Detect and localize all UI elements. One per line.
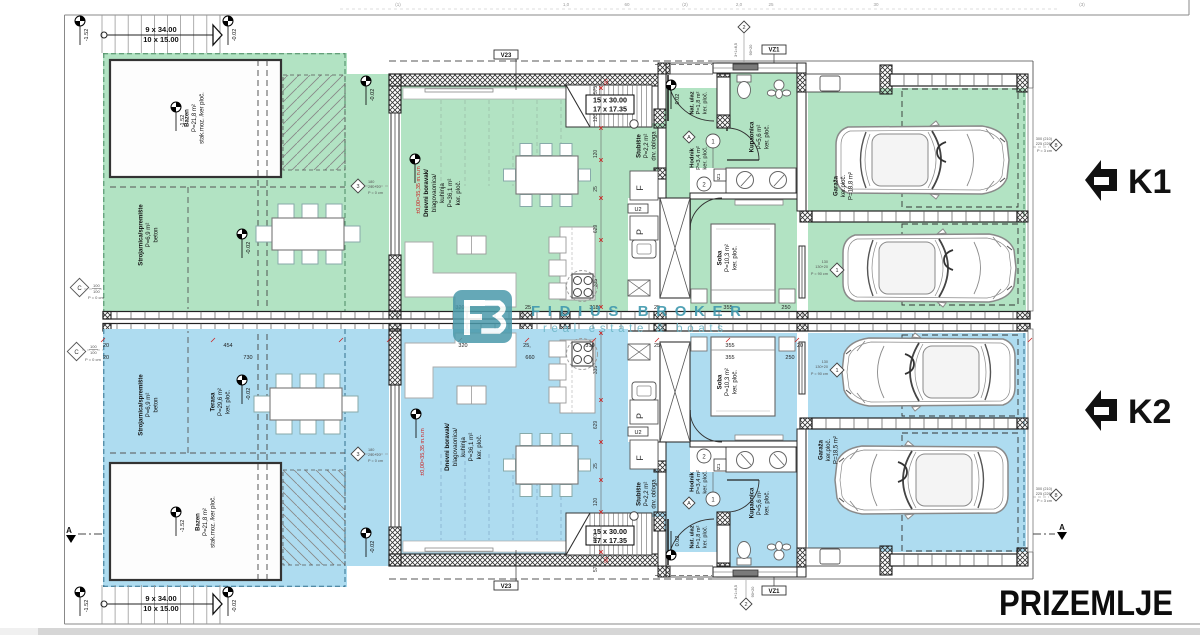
- svg-text:2: 2: [742, 25, 745, 31]
- svg-text:stak.moz. /ker ploč.: stak.moz. /ker ploč.: [211, 496, 217, 548]
- svg-text:575: 575: [593, 86, 599, 95]
- svg-text:IZ1: IZ1: [716, 463, 722, 470]
- svg-text:Stubište: Stubište: [637, 134, 643, 158]
- svg-text:ker. ploč.: ker. ploč.: [476, 434, 483, 459]
- svg-text:U2: U2: [634, 207, 641, 213]
- svg-text:1,0: 1,0: [563, 2, 570, 7]
- svg-text:Nat. ulaz: Nat. ulaz: [690, 525, 696, 548]
- svg-text:P=2,2 m²: P=2,2 m²: [644, 134, 650, 159]
- svg-text:Hodnik: Hodnik: [690, 147, 696, 167]
- svg-text:180: 180: [368, 180, 374, 184]
- svg-text:P = 0 cm: P = 0 cm: [85, 357, 101, 362]
- svg-text:225 (226): 225 (226): [1036, 492, 1053, 496]
- svg-text:P=10,3 m²: P=10,3 m²: [725, 244, 731, 272]
- svg-text:P=2,2 m²: P=2,2 m²: [644, 482, 650, 507]
- svg-text:10 x 15.00: 10 x 15.00: [143, 604, 178, 613]
- svg-text:9 x 34.00: 9 x 34.00: [145, 594, 176, 603]
- svg-text:120: 120: [593, 150, 599, 159]
- svg-text:1: 1: [835, 268, 838, 274]
- svg-text:P=1,8 m²: P=1,8 m²: [696, 525, 702, 548]
- svg-text:P = 0 cm: P = 0 cm: [88, 295, 104, 300]
- svg-text:90+20: 90+20: [749, 45, 753, 56]
- svg-text:250: 250: [781, 305, 790, 311]
- svg-text:ker. ploč.: ker. ploč.: [703, 470, 709, 494]
- svg-text:25: 25: [768, 2, 774, 7]
- svg-text:C: C: [77, 286, 82, 292]
- svg-text:Strojarnica/spremište: Strojarnica/spremište: [139, 374, 145, 436]
- svg-text:Kupaonica: Kupaonica: [750, 487, 756, 518]
- svg-text:P = 0 cm: P = 0 cm: [368, 191, 383, 195]
- svg-text:25: 25: [593, 463, 599, 469]
- svg-text:K1: K1: [1128, 163, 1171, 201]
- svg-text:2,0: 2,0: [736, 2, 743, 7]
- svg-text:P=36,1 m²: P=36,1 m²: [468, 433, 475, 462]
- svg-text:(2): (2): [682, 2, 688, 7]
- svg-text:120: 120: [593, 534, 599, 543]
- svg-text:30: 30: [873, 2, 879, 7]
- svg-text:ker. ploč.: ker. ploč.: [733, 246, 739, 270]
- svg-text:±0,00=35,35 m.n.m: ±0,00=35,35 m.n.m: [416, 166, 422, 214]
- svg-text:P=21,8 m²: P=21,8 m²: [203, 508, 209, 536]
- svg-text:629: 629: [593, 421, 599, 430]
- svg-text:130+20: 130+20: [815, 365, 828, 369]
- svg-text:0.02: 0.02: [675, 94, 681, 105]
- svg-text:575: 575: [593, 564, 599, 573]
- svg-text:P=18,8 m²: P=18,8 m²: [849, 172, 855, 200]
- svg-text:Hodnik: Hodnik: [690, 471, 696, 491]
- svg-text:Bazen: Bazen: [196, 513, 202, 531]
- svg-text:100: 100: [93, 283, 100, 288]
- svg-text:K2: K2: [1128, 393, 1171, 431]
- svg-text:P=10,3 m²: P=10,3 m²: [725, 368, 731, 396]
- svg-text:P=21,8 m²: P=21,8 m²: [192, 104, 198, 132]
- svg-text:C: C: [74, 350, 79, 356]
- svg-text:320: 320: [458, 343, 467, 349]
- svg-text:454: 454: [223, 343, 232, 349]
- svg-text:-0.02: -0.02: [246, 388, 252, 401]
- svg-text:100: 100: [90, 344, 97, 349]
- svg-text:3+1=8,5: 3+1=8,5: [734, 585, 738, 599]
- svg-text:ker. ploč.: ker. ploč.: [455, 180, 462, 205]
- svg-text:ker. ploč.: ker. ploč.: [703, 146, 709, 170]
- svg-text:A: A: [66, 526, 72, 535]
- svg-text:130: 130: [822, 360, 828, 364]
- svg-text:-0.02: -0.02: [246, 242, 252, 255]
- svg-text:P: P: [635, 413, 645, 419]
- svg-text:ker. ploč.: ker. ploč.: [765, 125, 771, 149]
- svg-text:ker.ploč.: ker.ploč.: [841, 175, 847, 198]
- svg-text:(3): (3): [1079, 2, 1085, 7]
- svg-text:Nat. ulaz: Nat. ulaz: [690, 91, 696, 114]
- svg-text:25: 25: [654, 343, 660, 349]
- svg-text:120: 120: [593, 114, 599, 123]
- svg-text:3: 3: [356, 184, 359, 190]
- svg-text:P=5,6 m²: P=5,6 m²: [757, 125, 763, 150]
- svg-text:0.02: 0.02: [675, 536, 681, 547]
- svg-text:blagovaonica/: blagovaonica/: [452, 428, 459, 466]
- svg-text:ker. ploč.: ker. ploč.: [703, 91, 709, 114]
- svg-text:-0.02: -0.02: [232, 29, 238, 42]
- svg-text:U2: U2: [634, 430, 641, 436]
- svg-text:Dnevni boravak/: Dnevni boravak/: [444, 423, 451, 471]
- svg-text:120: 120: [593, 498, 599, 507]
- svg-text:ker. ploč.: ker. ploč.: [765, 491, 771, 515]
- svg-text:-0.02: -0.02: [232, 600, 238, 613]
- svg-text:355: 355: [725, 343, 734, 349]
- svg-text:660: 660: [525, 355, 534, 361]
- svg-text:25: 25: [593, 186, 599, 192]
- svg-text:A: A: [1059, 523, 1065, 532]
- svg-text:Stubište: Stubište: [637, 482, 643, 506]
- svg-text:P=36,1 m²: P=36,1 m²: [447, 179, 454, 208]
- svg-text:-0.02: -0.02: [370, 89, 376, 102]
- svg-text:100: 100: [90, 350, 97, 355]
- svg-text:F: F: [635, 185, 645, 191]
- svg-text:PRIZEMLJE: PRIZEMLJE: [999, 584, 1173, 623]
- svg-text:335: 335: [593, 279, 599, 288]
- svg-text:A: A: [687, 135, 691, 141]
- svg-text:P = 90 cm: P = 90 cm: [811, 272, 828, 276]
- svg-text:90+20: 90+20: [751, 587, 755, 598]
- svg-text:25,: 25,: [523, 343, 531, 349]
- svg-text:ker. ploč.: ker. ploč.: [226, 390, 232, 414]
- svg-text:-1.52: -1.52: [84, 600, 90, 613]
- svg-text:10 x 15.00: 10 x 15.00: [143, 35, 178, 44]
- svg-text:IZ1: IZ1: [716, 173, 722, 180]
- svg-text:P=3,4 m²: P=3,4 m²: [696, 146, 702, 170]
- svg-text:P = 3 cm: P = 3 cm: [1037, 499, 1052, 503]
- svg-text:300 (210): 300 (210): [1036, 487, 1053, 491]
- svg-text:Terasa: Terasa: [211, 392, 217, 412]
- svg-text:20: 20: [797, 343, 803, 349]
- svg-text:P=5,6 m²: P=5,6 m²: [757, 491, 763, 516]
- svg-text:316: 316: [585, 343, 594, 349]
- svg-text:P=3,4 m²: P=3,4 m²: [696, 470, 702, 494]
- svg-text:P=18,5 m²: P=18,5 m²: [834, 436, 840, 464]
- svg-text:beton: beton: [154, 227, 160, 242]
- svg-text:3+1=8,5: 3+1=8,5: [734, 43, 738, 57]
- svg-text:629: 629: [593, 225, 599, 234]
- svg-text:P = 0 cm: P = 0 cm: [368, 459, 383, 463]
- svg-text:Dnevni boravak/: Dnevni boravak/: [423, 169, 430, 217]
- svg-text:±0,00=35,35 m.n.m: ±0,00=35,35 m.n.m: [420, 428, 426, 476]
- svg-text:3: 3: [356, 452, 359, 458]
- svg-text:drv. obloga: drv. obloga: [652, 479, 658, 509]
- svg-text:8: 8: [1054, 143, 1057, 149]
- svg-text:-1.52: -1.52: [180, 115, 186, 128]
- svg-text:P: P: [635, 229, 645, 235]
- svg-text:kuhinja: kuhinja: [460, 437, 467, 457]
- svg-text:355: 355: [725, 355, 734, 361]
- svg-text:225 (226): 225 (226): [1036, 142, 1053, 146]
- svg-text:20: 20: [103, 343, 109, 349]
- svg-text:Strojarnica/spremište: Strojarnica/spremište: [139, 204, 145, 266]
- svg-text:VZ1: VZ1: [768, 589, 780, 595]
- svg-text:kuhinja: kuhinja: [439, 183, 446, 203]
- svg-text:-1.52: -1.52: [84, 29, 90, 42]
- svg-text:Garaža: Garaža: [819, 439, 825, 460]
- svg-text:P=6,9 m²: P=6,9 m²: [146, 223, 152, 248]
- svg-text:-1.52: -1.52: [180, 520, 186, 533]
- svg-text:V23: V23: [501, 584, 512, 590]
- svg-text:ker. ploč.: ker. ploč.: [703, 525, 709, 548]
- svg-text:2: 2: [744, 602, 747, 608]
- svg-text:Garaža: Garaža: [834, 175, 840, 196]
- svg-text:15 x 30.00: 15 x 30.00: [593, 96, 627, 105]
- svg-text:90: 90: [604, 557, 610, 563]
- svg-text:20: 20: [103, 355, 109, 361]
- svg-text:60: 60: [624, 2, 630, 7]
- svg-text:P = 3 cm: P = 3 cm: [1037, 149, 1052, 153]
- svg-text:300 (210): 300 (210): [1036, 137, 1053, 141]
- svg-text:8: 8: [1054, 493, 1057, 499]
- svg-text:P=6,9 m²: P=6,9 m²: [146, 393, 152, 418]
- svg-text:Soba: Soba: [718, 374, 724, 389]
- svg-text:VZ1: VZ1: [768, 48, 780, 54]
- svg-text:100: 100: [93, 289, 100, 294]
- svg-text:17 x 17.35: 17 x 17.35: [593, 105, 627, 114]
- svg-text:P = 90 cm: P = 90 cm: [811, 372, 828, 376]
- svg-text:-0.02: -0.02: [370, 541, 376, 554]
- svg-text:(1): (1): [395, 2, 401, 7]
- svg-text:130+20: 130+20: [815, 265, 828, 269]
- svg-text:V23: V23: [501, 53, 512, 59]
- svg-text:beton: beton: [154, 397, 160, 412]
- svg-text:240+20: 240+20: [368, 453, 381, 457]
- svg-text:90: 90: [604, 79, 610, 85]
- svg-text:250: 250: [785, 355, 794, 361]
- svg-text:1: 1: [835, 368, 838, 374]
- svg-text:ker. ploč.: ker. ploč.: [733, 370, 739, 394]
- svg-text:stak.moz. /ker ploč.: stak.moz. /ker ploč.: [200, 92, 206, 144]
- svg-text:blagovaonica/: blagovaonica/: [431, 174, 438, 212]
- svg-text:P=1,8 m²: P=1,8 m²: [696, 91, 702, 114]
- svg-text:130: 130: [822, 260, 828, 264]
- svg-text:335: 335: [593, 366, 599, 375]
- svg-text:Soba: Soba: [718, 250, 724, 265]
- svg-text:A: A: [687, 501, 691, 507]
- svg-text:Kupaonica: Kupaonica: [750, 121, 756, 152]
- svg-text:ker.ploč.: ker.ploč.: [826, 439, 832, 462]
- svg-text:730: 730: [243, 355, 252, 361]
- svg-text:9 x 34.00: 9 x 34.00: [145, 25, 176, 34]
- svg-text:240+20: 240+20: [368, 185, 381, 189]
- svg-text:P=29,6 m²: P=29,6 m²: [218, 388, 224, 416]
- svg-text:F: F: [635, 455, 645, 461]
- svg-text:180: 180: [368, 448, 374, 452]
- svg-text:drv. obloga: drv. obloga: [652, 131, 658, 161]
